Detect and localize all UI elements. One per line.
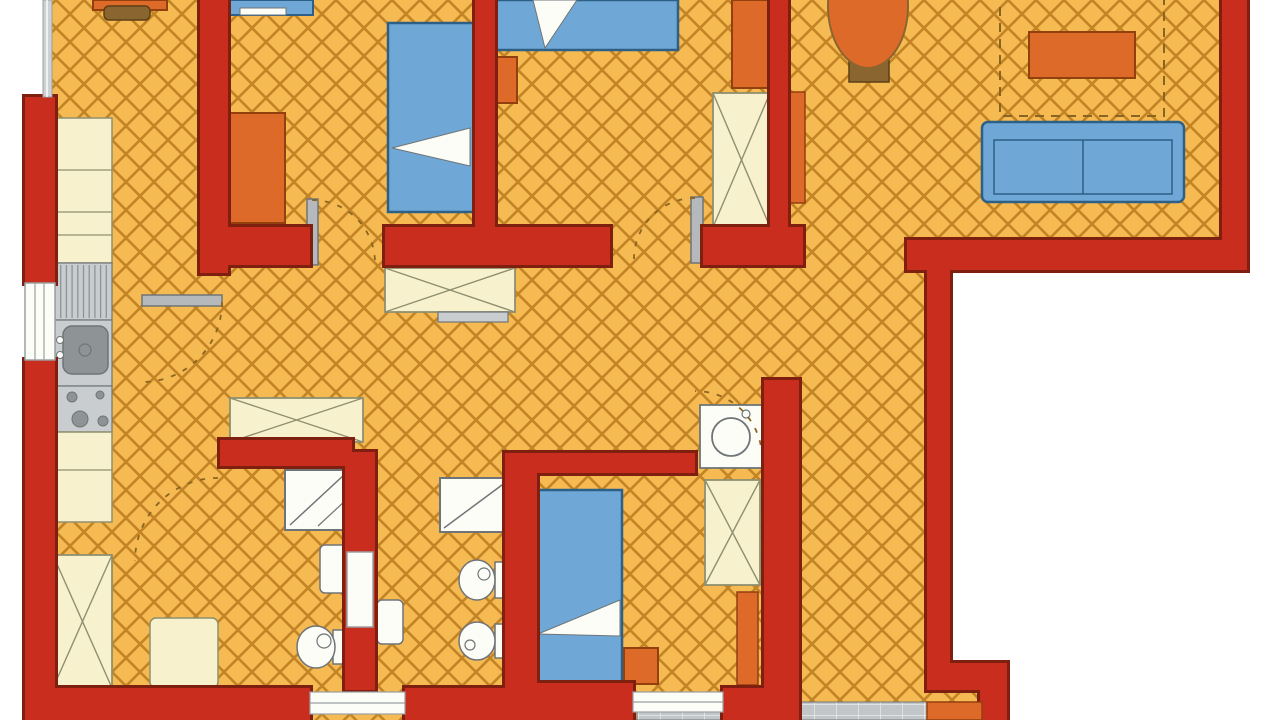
- wall-closet-thin: [770, 0, 788, 230]
- bedroom3-door-leaf: [737, 592, 758, 685]
- wall-bathroom1-top: [220, 440, 352, 466]
- bed-3: [535, 490, 622, 686]
- washbasin-2: [377, 600, 403, 644]
- wall-corridor-right: [927, 270, 950, 665]
- wall-living-bottom: [907, 240, 1247, 270]
- hall-shelf: [438, 312, 508, 322]
- wall-bedroom3-top: [537, 453, 695, 473]
- wall-bedroom3-bottom: [505, 683, 633, 720]
- washing-machine: [700, 405, 762, 468]
- coffee-table: [1029, 32, 1135, 78]
- toilet-1-bowl: [297, 626, 335, 668]
- entry-cabinet: [150, 618, 218, 688]
- kitchen-counter-lower: [55, 432, 112, 522]
- bedroom1-dresser: [230, 113, 285, 223]
- wall-living-right: [1222, 0, 1247, 250]
- bed-1: [388, 23, 475, 212]
- kitchen-door-leaf: [142, 295, 222, 306]
- stove-burner: [67, 392, 77, 402]
- wall-bottom-stub: [723, 688, 764, 720]
- stove-burner: [98, 416, 108, 426]
- bedroom2-cabinet: [732, 0, 770, 88]
- bedroom3-nightstand: [624, 648, 658, 684]
- wall-bottom-left: [25, 688, 310, 720]
- wall-hall-top-a: [225, 227, 310, 265]
- bathroom2-door: [347, 552, 373, 627]
- toilet-2-bowl: [459, 560, 495, 600]
- entry-mat: [927, 702, 982, 720]
- floor-plan-page: [0, 0, 1280, 720]
- bed-2: [490, 0, 678, 50]
- wall-kitchen-right: [200, 0, 228, 273]
- wall-bedroom-divider: [475, 0, 495, 238]
- stove-burner: [96, 391, 104, 399]
- wall-bathroom2-right: [505, 453, 537, 690]
- kitchen-chair: [104, 6, 150, 20]
- faucet-dot: [57, 337, 64, 344]
- wall-corridor-step-v: [980, 690, 1007, 720]
- wall-corridor-step-h: [927, 663, 1007, 690]
- wall-hall-top-c: [703, 227, 803, 265]
- bed-1-stub-pillow: [240, 8, 286, 15]
- bidet-bowl: [459, 622, 495, 660]
- window-left: [25, 283, 55, 360]
- wall-bedroom3-corridor: [764, 380, 799, 720]
- wall-left-top: [25, 97, 55, 283]
- wall-hall-top-b: [385, 227, 610, 265]
- wall-bottom-mid: [405, 688, 507, 720]
- wall-left-bottom: [25, 360, 55, 720]
- kitchen-counter-upper: [55, 118, 112, 263]
- floor-plan-canvas: [0, 0, 1280, 720]
- kitchen-sink-basin: [63, 326, 108, 374]
- stove-burner: [72, 411, 88, 427]
